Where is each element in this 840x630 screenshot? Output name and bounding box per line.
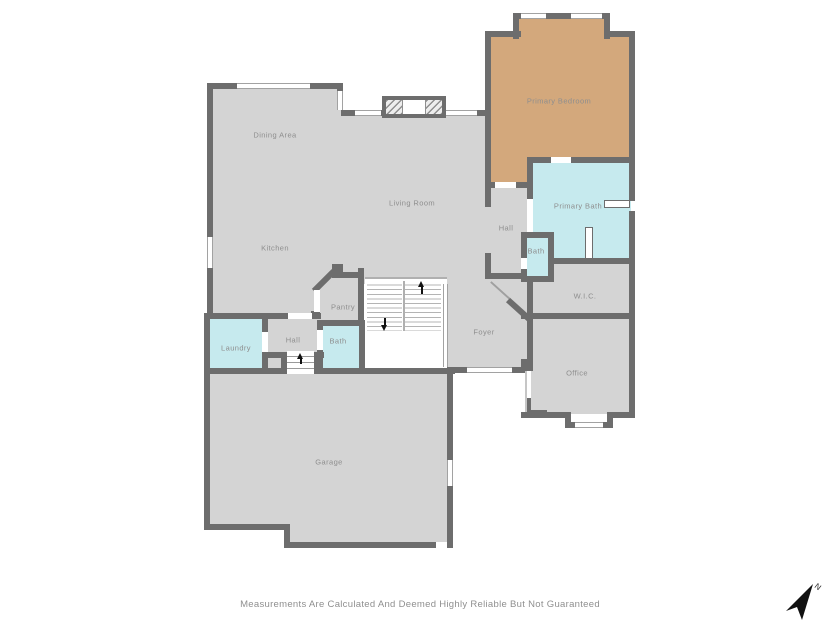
window xyxy=(467,367,512,373)
wall xyxy=(629,264,635,319)
window xyxy=(521,13,546,19)
wall xyxy=(337,83,343,91)
stairs-down-arrow-stem xyxy=(384,318,386,326)
room-garage-ext xyxy=(286,496,448,544)
room-label-bath-upper: Bath xyxy=(527,247,544,256)
wall xyxy=(204,368,455,374)
window xyxy=(575,422,603,428)
door-leaf xyxy=(604,200,630,208)
wall xyxy=(629,211,635,264)
door-leaf xyxy=(585,227,593,259)
wall xyxy=(629,319,635,418)
stairs-flight-up xyxy=(405,281,441,331)
wall xyxy=(317,320,323,330)
door-opening xyxy=(521,258,527,269)
fireplace-hatch xyxy=(386,100,402,114)
door-opening xyxy=(314,290,320,312)
door-opening xyxy=(317,330,323,350)
door-opening xyxy=(551,157,571,163)
fireplace-icon xyxy=(382,96,446,118)
wall xyxy=(359,320,365,368)
stairs-divider xyxy=(403,281,405,331)
room-label-primary-bath: Primary Bath xyxy=(554,202,602,211)
wall xyxy=(629,31,635,169)
garage-steps-arrow-stem xyxy=(300,358,302,364)
wall xyxy=(521,276,554,282)
stairs-up-arrow-stem xyxy=(421,286,423,294)
window xyxy=(447,460,453,486)
room-label-hall-upper: Hall xyxy=(499,224,514,233)
fireplace-hatch xyxy=(426,100,442,114)
room-label-kitchen: Kitchen xyxy=(261,244,289,253)
room-label-pantry: Pantry xyxy=(331,303,355,312)
compass-north-label: N xyxy=(813,581,823,592)
compass-arrow xyxy=(786,584,813,620)
wall xyxy=(284,542,438,548)
window xyxy=(444,110,477,116)
wall xyxy=(485,273,523,279)
wall xyxy=(521,232,527,260)
door-opening xyxy=(527,199,533,232)
wall xyxy=(317,350,323,372)
window xyxy=(355,110,381,116)
wall xyxy=(551,258,635,264)
disclaimer-text: Measurements Are Calculated And Deemed H… xyxy=(0,599,840,610)
wall xyxy=(204,313,268,319)
door-opening xyxy=(288,313,312,319)
room-label-office: Office xyxy=(566,369,588,378)
wall xyxy=(204,313,210,374)
wall xyxy=(204,524,290,530)
room-label-living-room: Living Room xyxy=(389,199,435,208)
room-label-primary-bedroom: Primary Bedroom xyxy=(527,97,591,106)
room-label-dining-area: Dining Area xyxy=(253,131,296,140)
wall xyxy=(204,368,210,530)
compass-icon: N xyxy=(782,578,828,626)
wall xyxy=(521,412,569,418)
wall xyxy=(521,313,635,319)
window xyxy=(443,284,448,367)
wall xyxy=(262,318,268,332)
wall xyxy=(447,368,453,460)
wall xyxy=(527,163,533,201)
door-opening xyxy=(495,182,516,188)
fireplace-firebox xyxy=(402,100,426,114)
wall xyxy=(207,268,213,318)
room-label-garage: Garage xyxy=(315,458,342,467)
door-opening xyxy=(262,332,268,352)
wall xyxy=(207,83,213,237)
room-label-laundry: Laundry xyxy=(221,344,251,353)
window xyxy=(337,91,343,110)
room-label-bath-lower: Bath xyxy=(329,337,346,346)
wall xyxy=(629,163,635,201)
wall xyxy=(266,313,288,319)
wall xyxy=(571,157,635,163)
room-label-wic: W.I.C. xyxy=(574,292,597,301)
wall xyxy=(527,319,533,371)
stairs-top-line xyxy=(365,277,447,279)
window xyxy=(237,83,310,89)
wall xyxy=(485,31,491,188)
wall xyxy=(311,311,320,319)
room-label-foyer: Foyer xyxy=(473,328,494,337)
porch-line xyxy=(525,371,527,412)
wall xyxy=(447,486,453,548)
wall xyxy=(546,13,572,19)
room-office xyxy=(531,317,631,414)
window xyxy=(571,13,602,19)
room-bath-upper xyxy=(525,236,550,278)
wall xyxy=(358,268,364,322)
wall xyxy=(485,188,491,207)
window xyxy=(207,237,213,268)
room-bath-lower xyxy=(321,324,361,368)
floor-plan: Dining AreaKitchenLiving RoomPrimary Bed… xyxy=(0,0,840,630)
room-laundry xyxy=(208,317,264,368)
room-label-hall-lower: Hall xyxy=(286,336,301,345)
door-opening xyxy=(436,542,447,548)
